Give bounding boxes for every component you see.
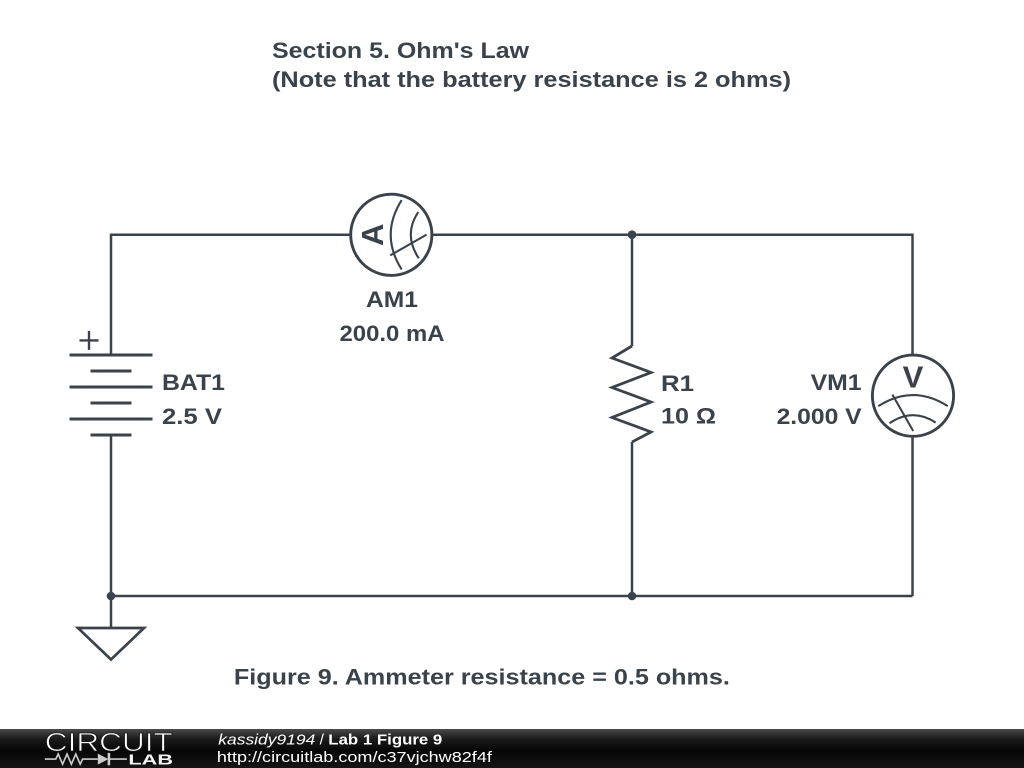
svg-text:Section 5. Ohm's Law: Section 5. Ohm's Law [272,38,530,63]
svg-text:Figure 9. Ammeter resistance =: Figure 9. Ammeter resistance = 0.5 ohms. [234,665,730,690]
svg-text:V: V [903,359,924,394]
svg-text:(Note that the battery resista: (Note that the battery resistance is 2 o… [272,67,791,92]
svg-text:VM1: VM1 [811,370,862,395]
svg-text:R1: R1 [661,371,694,396]
svg-text:kassidy9194 / Lab 1 Figure 9: kassidy9194 / Lab 1 Figure 9 [218,731,442,748]
svg-text:2.000 V: 2.000 V [777,404,862,429]
svg-text:AM1: AM1 [366,287,418,312]
svg-text:BAT1: BAT1 [162,370,225,395]
svg-text:http://circuitlab.com/c37vjchw: http://circuitlab.com/c37vjchw82f4f [217,749,493,766]
svg-text:10 Ω: 10 Ω [661,404,716,429]
svg-text:2.5 V: 2.5 V [162,404,222,429]
svg-text:A: A [355,224,390,246]
svg-text:200.0 mA: 200.0 mA [340,321,445,346]
svg-text:LAB: LAB [128,751,173,768]
